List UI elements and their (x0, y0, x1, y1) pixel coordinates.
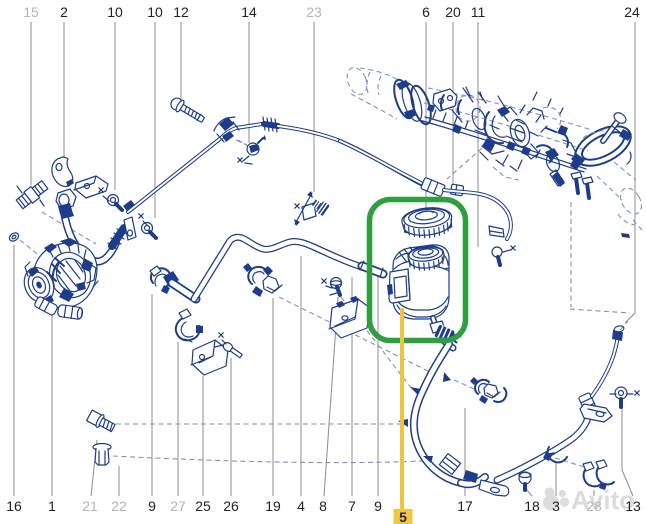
svg-text:22: 22 (111, 498, 127, 514)
svg-text:9: 9 (374, 498, 382, 514)
svg-text:11: 11 (471, 4, 486, 20)
svg-text:21: 21 (82, 498, 98, 514)
svg-text:24: 24 (624, 4, 640, 20)
svg-text:14: 14 (241, 4, 257, 20)
svg-text:9: 9 (148, 498, 156, 514)
svg-text:7: 7 (348, 498, 356, 514)
svg-text:12: 12 (173, 4, 189, 20)
svg-text:16: 16 (6, 498, 22, 514)
svg-text:6: 6 (422, 4, 430, 20)
svg-text:10: 10 (147, 4, 163, 20)
svg-text:8: 8 (319, 498, 327, 514)
svg-text:27: 27 (170, 498, 186, 514)
svg-text:10: 10 (107, 4, 123, 20)
svg-text:28: 28 (586, 498, 602, 514)
svg-text:13: 13 (625, 498, 641, 514)
svg-text:2: 2 (60, 4, 68, 20)
svg-text:18: 18 (524, 498, 540, 514)
svg-text:5: 5 (399, 509, 407, 524)
svg-text:15: 15 (23, 4, 39, 20)
svg-text:1: 1 (48, 498, 56, 514)
svg-text:3: 3 (552, 498, 560, 514)
svg-text:19: 19 (265, 498, 281, 514)
svg-text:4: 4 (297, 498, 305, 514)
svg-text:25: 25 (195, 498, 211, 514)
svg-text:26: 26 (223, 498, 239, 514)
svg-text:17: 17 (457, 498, 473, 514)
svg-text:23: 23 (306, 4, 322, 20)
svg-text:20: 20 (445, 4, 461, 20)
